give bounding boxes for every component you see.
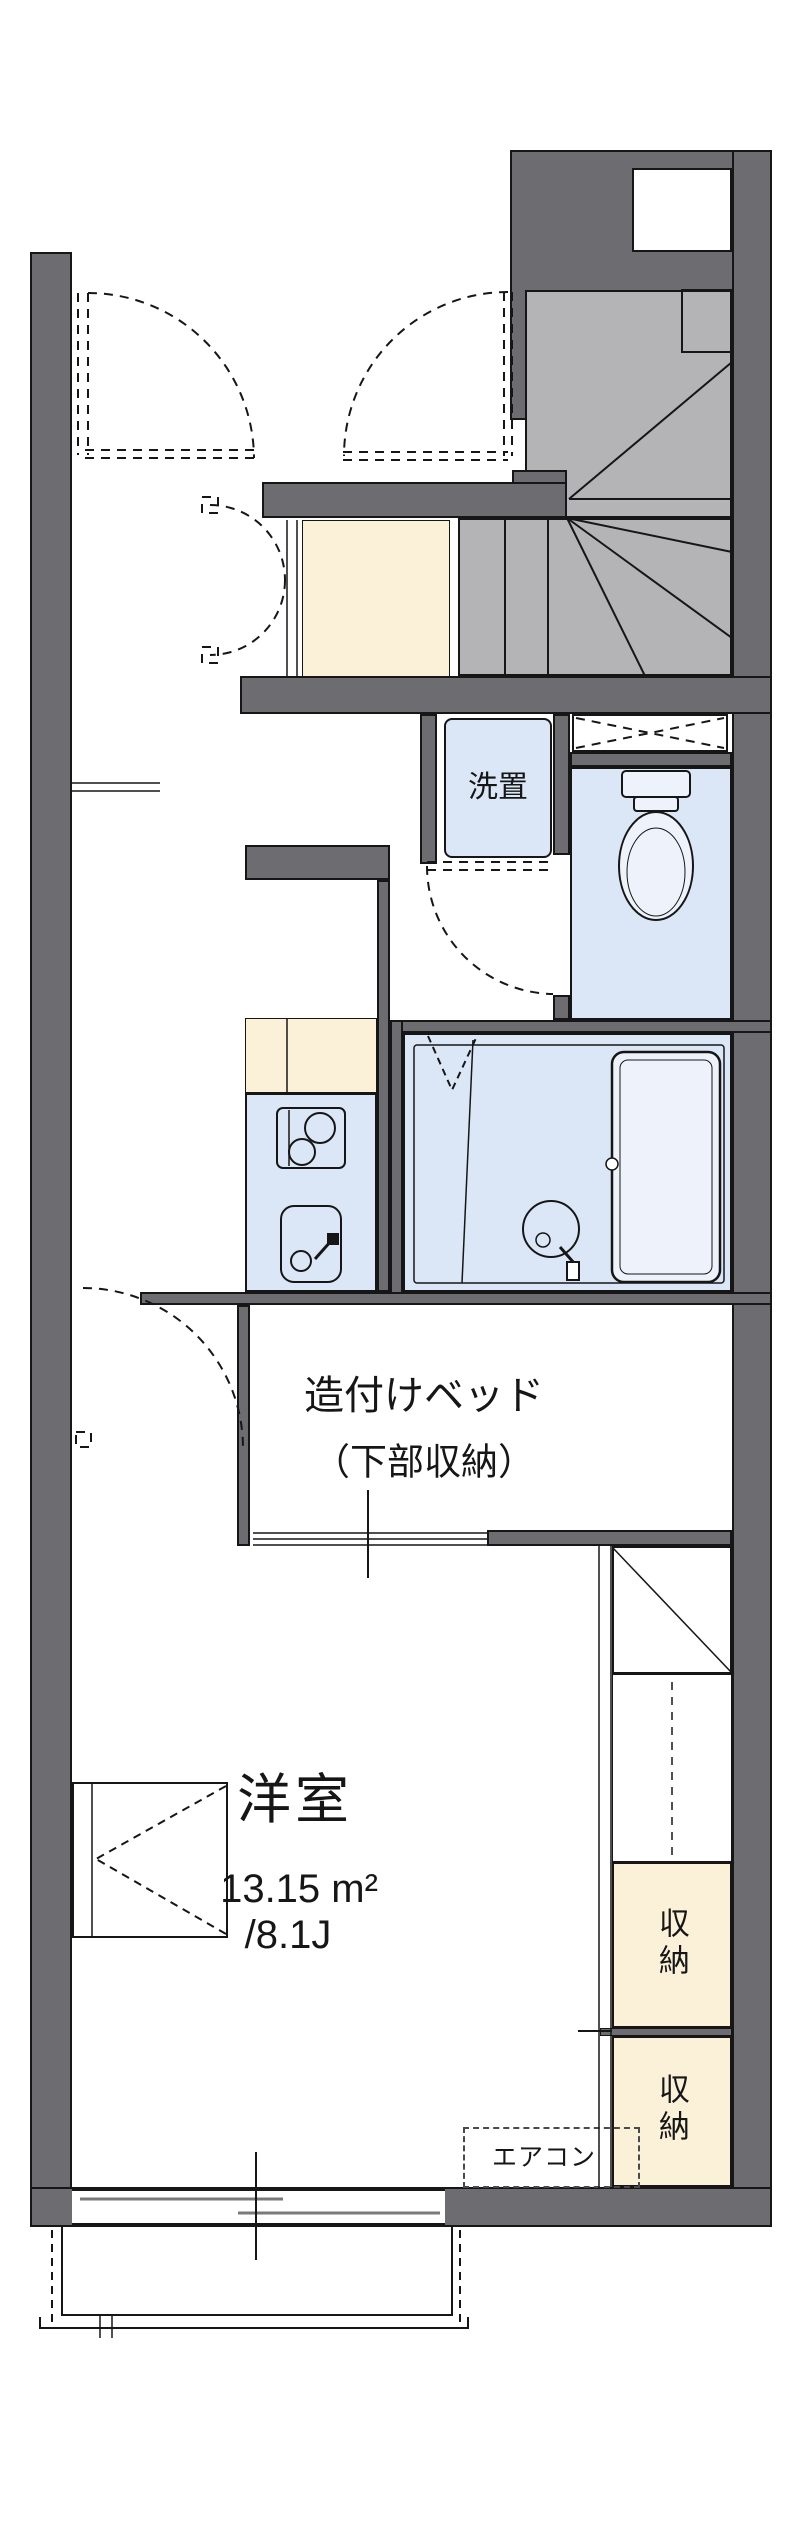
linework — [0, 0, 800, 2541]
stair-treads — [505, 290, 732, 676]
hall-door-arc — [343, 292, 512, 460]
aircon-label: エアコン — [492, 2144, 596, 2173]
room-area-label: 13.15 m² — [220, 1866, 378, 1912]
stove-fixture — [277, 1108, 345, 1168]
room-jo-label: /8.1J — [245, 1912, 332, 1958]
bed-sliding-door — [253, 1490, 487, 1578]
bay-window-icon — [92, 1784, 226, 1936]
sink-fixture — [281, 1206, 341, 1282]
bathtub — [612, 1052, 720, 1282]
storage-lower-label: 収納 — [653, 2073, 689, 2147]
shower-fixture — [523, 1201, 579, 1257]
washroom-door-arc — [427, 862, 553, 994]
storage-upper-label: 収納 — [653, 1907, 689, 1981]
entrance-door-arc — [78, 293, 256, 458]
closet-diagonal — [613, 1548, 731, 1672]
step-edge-lines — [72, 520, 297, 791]
room-door-arc — [76, 1288, 243, 1448]
shelf-cross-icon — [576, 718, 724, 748]
entry-closet-doors-arc — [202, 497, 285, 663]
south-window-icon — [80, 2152, 440, 2260]
bed-label: 造付けベッド — [304, 1373, 544, 1419]
balcony — [40, 2227, 468, 2338]
bed-sublabel: （下部収納） — [313, 1442, 535, 1485]
floorplan: 洗置 造付けベッド （下部収納） 洋室 13.15 m² /8.1J 収納 収納… — [0, 0, 800, 2541]
washer-label: 洗置 — [468, 771, 528, 806]
room-name-label: 洋室 — [237, 1769, 353, 1831]
bath-folding-door — [428, 1036, 477, 1090]
bath-fixtures — [414, 1036, 724, 1283]
toilet-fixture — [619, 771, 693, 920]
